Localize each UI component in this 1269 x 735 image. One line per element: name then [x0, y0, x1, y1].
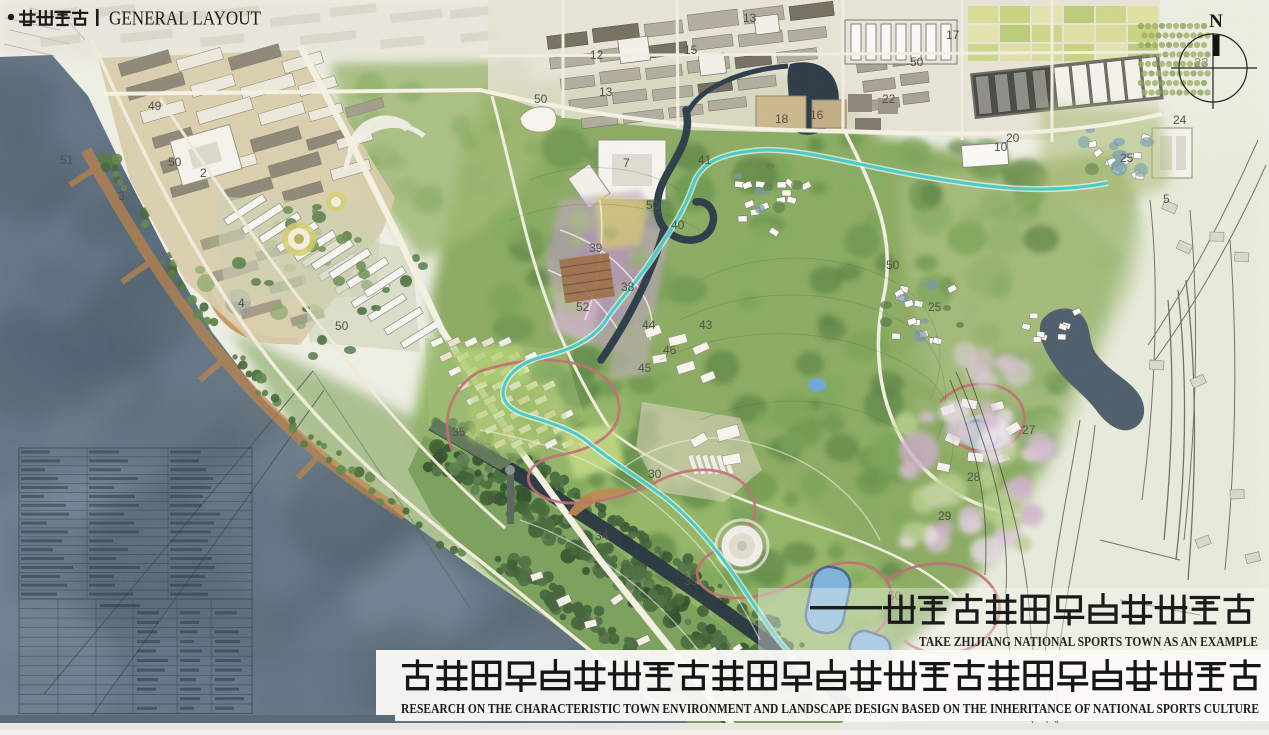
svg-text:RESEARCH ON THE CHARACTERISTIC: RESEARCH ON THE CHARACTERISTIC TOWN ENVI… [401, 702, 1259, 717]
